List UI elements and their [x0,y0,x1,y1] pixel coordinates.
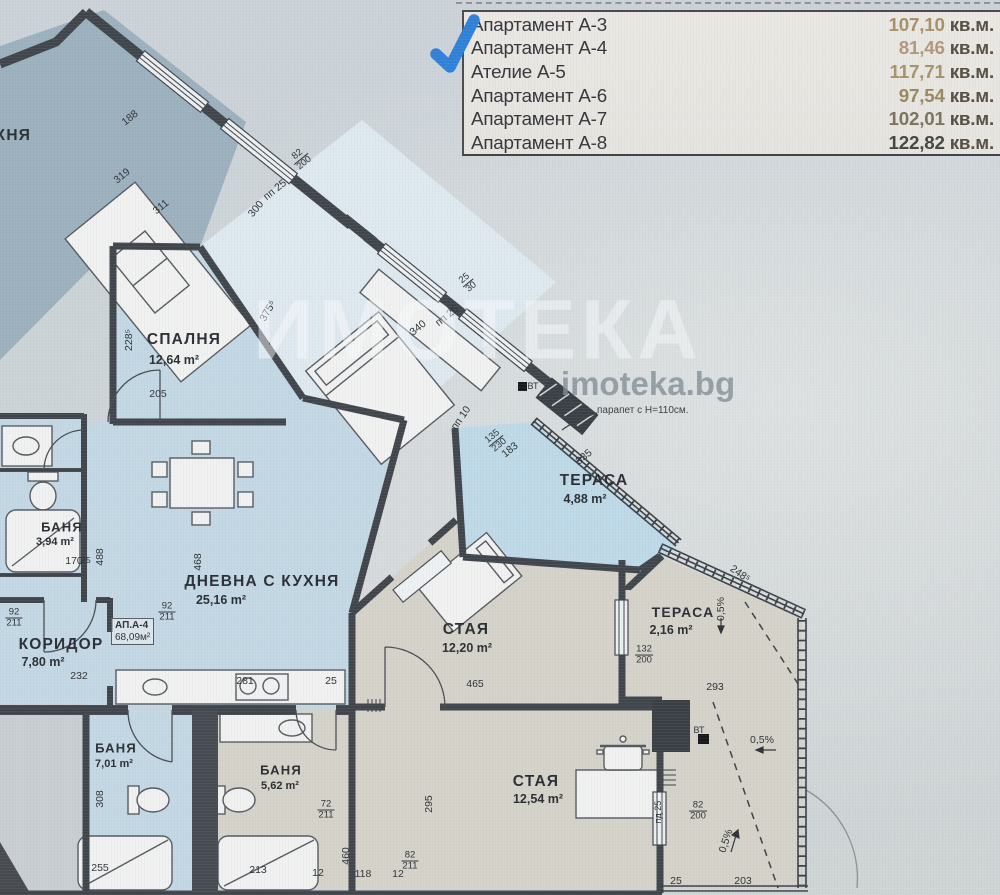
legend-apartment-area: 81,46 кв.м. [899,37,994,59]
bathtub-bath1 [6,510,80,572]
legend-apartment-area: 122,82 кв.м. [888,132,994,154]
desk-room2 [576,770,662,818]
legend-row: Апартамент А-7102,01 кв.м. [471,107,994,131]
apartment-tag: АП.А-4 68,09м² [111,618,154,645]
legend-row: Апартамент А-697,54 кв.м. [471,84,994,108]
legend-apartment-name: Апартамент А-7 [471,108,607,130]
legend: Апартамент А-3107,10 кв.м.Апартамент А-4… [462,10,1000,156]
apartment-tag-area: 68,09м² [115,632,150,644]
apartment-tag-id: АП.А-4 [115,620,150,632]
legend-apartment-name: Апартамент А-6 [471,85,607,107]
vt-shaft-1 [518,382,527,391]
sink-left [2,426,52,466]
floor-plan-photo: КУХНЯСПАЛНЯ12,64 m²ДНЕВНА С КУХНЯ25,16 m… [0,0,1000,895]
legend-row: Ателие А-5117,71 кв.м. [471,60,994,84]
thick-wall [192,710,218,893]
vt-shaft-2 [698,734,709,744]
legend-row: Апартамент А-481,46 кв.м. [471,37,994,61]
bathtub-bath3 [218,836,318,890]
legend-rows: Апартамент А-3107,10 кв.м.Апартамент А-4… [471,13,994,155]
toilet-bath1 [28,472,58,510]
legend-top-marks [456,2,1000,6]
legend-row: Апартамент А-3107,10 кв.м. [471,13,994,37]
bathtub-bath2 [78,836,172,890]
legend-apartment-area: 107,10 кв.м. [888,14,994,36]
checkmark-icon [436,20,474,67]
legend-apartment-name: Апартамент А-4 [471,37,607,59]
legend-apartment-area: 117,71 кв.м. [889,61,994,83]
legend-apartment-name: Апартамент А-3 [471,14,607,36]
kitchen-counter [116,670,345,704]
legend-apartment-area: 102,01 кв.м. [888,108,994,130]
sink-bath3 [220,714,312,742]
shaft-2 [652,700,690,752]
toilet-bath3 [214,786,255,814]
checkmark-annotation [424,10,486,78]
legend-apartment-name: Апартамент А-8 [471,132,607,154]
legend-row: Апартамент А-8122,82 кв.м. [471,131,994,155]
toilet-bath2 [128,786,169,814]
parapet-note: парапет с Н=110см. [597,405,689,416]
legend-apartment-area: 97,54 кв.м. [899,85,994,107]
